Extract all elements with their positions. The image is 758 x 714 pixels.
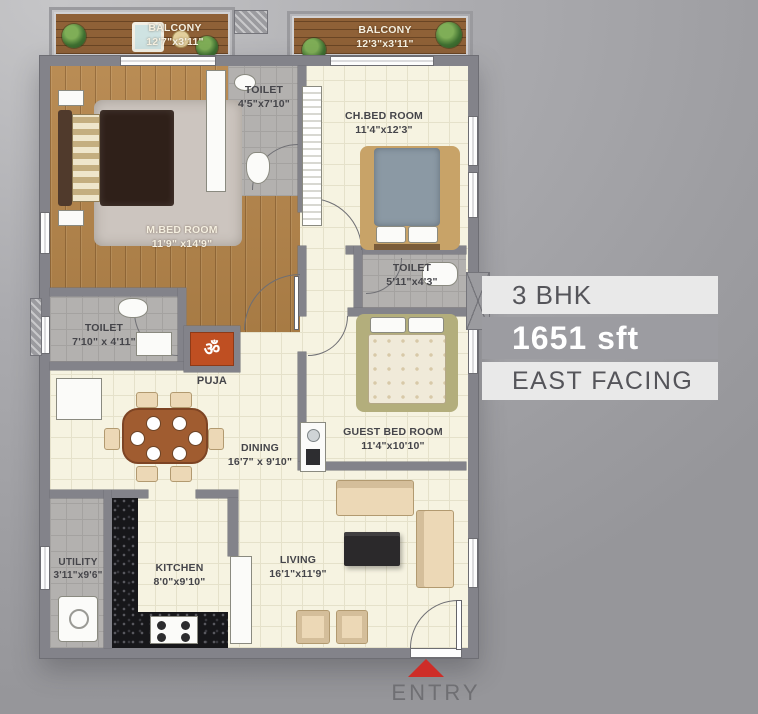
room-label-toilet-top: TOILET4'5"x7'10": [224, 84, 304, 111]
window: [468, 172, 478, 218]
room-label-kitchen: KITCHEN8'0"x9'10": [132, 562, 227, 589]
bed-blanket-icon: [374, 148, 440, 226]
coffee-table-icon: [344, 532, 400, 566]
wall: [354, 246, 362, 316]
room-label-guest-bedroom: GUEST BED ROOM11'4"x10'10": [318, 426, 468, 453]
plant-icon: [62, 24, 86, 48]
washing-machine-icon: [58, 596, 98, 642]
duct-box: [234, 10, 268, 34]
balcony-door: [120, 56, 216, 66]
double-bed-icon: [100, 110, 174, 206]
floor-plan-page: ॐ BALCONY12'7"x3'11" BALC: [0, 0, 758, 714]
facing-band: EAST FACING: [482, 362, 718, 400]
cabinet-icon: [56, 378, 102, 420]
balcony-door: [330, 56, 434, 66]
wall: [196, 490, 238, 498]
wall: [50, 288, 186, 296]
room-label-balcony-left: BALCONY12'7"x3'11": [120, 22, 230, 49]
dining-chair-icon: [170, 466, 192, 482]
room-label-ch-bedroom: CH.BED ROOM11'4"x12'3": [314, 110, 454, 137]
facing-text: EAST FACING: [512, 367, 693, 396]
stove-icon: [150, 616, 198, 644]
bed-pillows-icon: [408, 226, 438, 243]
duct-box: [30, 298, 42, 356]
om-icon: ॐ: [204, 337, 220, 361]
dresser-icon: [206, 70, 226, 192]
entry-arrow-icon: [408, 659, 444, 677]
room-label-puja: PUJA: [178, 374, 246, 388]
wall: [112, 490, 148, 498]
nightstand-icon: [58, 90, 84, 106]
room-label-balcony-right: BALCONY12'3"x3'11": [330, 24, 440, 51]
bed-pillows-icon: [376, 226, 406, 243]
dining-chair-icon: [104, 428, 120, 450]
wall: [50, 362, 186, 370]
door-leaf: [294, 276, 299, 330]
room-label-utility: UTILITY3'11"x9'6": [42, 556, 114, 582]
wc-icon: [118, 298, 148, 318]
room-label-toilet-left: TOILET7'10" x 4'11": [56, 322, 152, 349]
ottoman-icon: [336, 610, 368, 644]
entry-label: ENTRY: [386, 680, 486, 706]
window: [468, 538, 478, 588]
wardrobe-icon: [302, 86, 322, 226]
ottoman-icon: [296, 610, 330, 644]
bed-pillows-icon: [72, 114, 100, 202]
dining-table-icon: [122, 408, 208, 464]
bhk-text: 3 BHK: [512, 280, 592, 311]
dining-chair-icon: [136, 466, 158, 482]
window: [468, 116, 478, 166]
sofa-icon: [416, 510, 454, 588]
double-bed-icon: [368, 334, 446, 404]
bhk-band: 3 BHK: [482, 276, 718, 314]
area-text: 1651 sft: [512, 320, 639, 357]
bed-headboard-icon: [58, 110, 72, 206]
wc-icon: [246, 152, 270, 184]
bed-pillows-icon: [408, 317, 444, 333]
wall: [50, 490, 112, 498]
room-label-m-bedroom: M.BED ROOM11'9" x14'9": [122, 224, 242, 251]
entry-threshold: [410, 648, 462, 658]
puja-unit: ॐ: [190, 332, 234, 366]
entry-door-leaf: [456, 600, 462, 650]
door-arc-master-bedroom: [244, 274, 300, 330]
door-arc-guest-bedroom: [308, 316, 348, 356]
bed-pillows-icon: [370, 317, 406, 333]
dining-chair-icon: [170, 392, 192, 408]
area-band: 1651 sft: [482, 317, 718, 359]
door-arc-entry: [410, 600, 458, 648]
window: [468, 328, 478, 374]
room-label-dining: DINING16'7" x 9'10": [204, 442, 316, 469]
wall: [228, 498, 238, 556]
sofa-icon: [336, 480, 414, 516]
room-label-toilet-mid: TOILET5'11"x4'3": [370, 262, 454, 289]
nightstand-icon: [58, 210, 84, 226]
dining-chair-icon: [136, 392, 158, 408]
window: [40, 212, 50, 254]
room-label-living: LIVING16'1"x11'9": [248, 554, 348, 581]
bed-headboard-icon: [374, 244, 440, 250]
